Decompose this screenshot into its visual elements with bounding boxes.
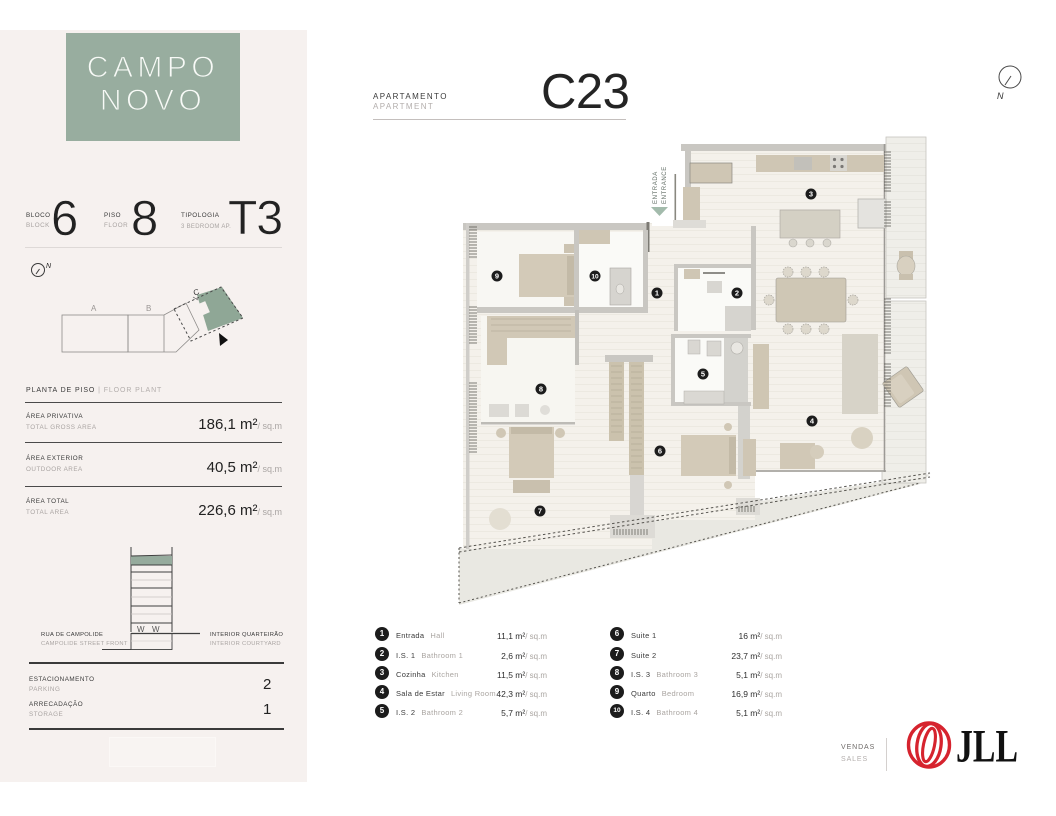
- svg-text:ENTRADA: ENTRADA: [653, 171, 659, 204]
- svg-text:1: 1: [655, 289, 659, 298]
- svg-text:A: A: [91, 304, 97, 313]
- svg-text:N: N: [46, 263, 52, 270]
- svg-text:3: 3: [809, 190, 813, 199]
- svg-text:9: 9: [495, 272, 499, 281]
- svg-text:5: 5: [701, 370, 705, 379]
- svg-text:N: N: [997, 91, 1004, 101]
- svg-text:8: 8: [539, 385, 543, 394]
- svg-text:JLL: JLL: [956, 721, 1018, 773]
- svg-text:B: B: [146, 304, 151, 313]
- svg-text:W: W: [152, 625, 161, 634]
- svg-text:C: C: [192, 287, 201, 298]
- svg-text:W: W: [137, 625, 146, 634]
- svg-text:6: 6: [658, 447, 662, 456]
- svg-text:2: 2: [735, 289, 739, 298]
- svg-text:10: 10: [591, 274, 599, 281]
- svg-text:ENTRANCE: ENTRANCE: [662, 166, 668, 204]
- svg-text:7: 7: [538, 507, 542, 516]
